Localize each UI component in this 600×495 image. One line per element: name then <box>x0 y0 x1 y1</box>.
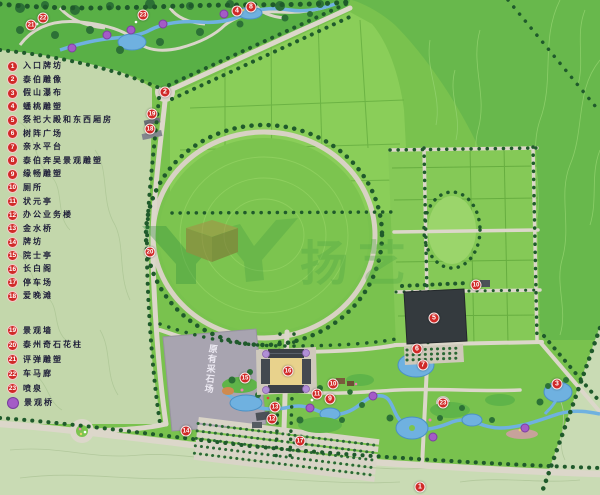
legend-number: 12 <box>7 210 18 221</box>
legend-label: 厕所 <box>23 184 43 192</box>
legend-label: 亲水平台 <box>23 143 63 151</box>
legend-number: 13 <box>7 223 18 234</box>
legend-label: 树阵广场 <box>23 130 63 138</box>
legend-number: 18 <box>7 291 18 302</box>
legend-item: 7亲水平台 <box>7 142 63 153</box>
landscape-bridge-dot[interactable] <box>429 433 438 442</box>
landscape-bridge-dot[interactable] <box>220 10 229 19</box>
map-marker[interactable]: 16 <box>283 366 294 377</box>
legend-number: 8 <box>7 155 18 166</box>
landscape-bridge-dot[interactable] <box>127 26 136 35</box>
legend-number: 14 <box>7 237 18 248</box>
landscape-bridge-dot[interactable] <box>159 20 168 29</box>
legend-label: 喷泉 <box>23 385 43 393</box>
legend-number: 4 <box>7 101 18 112</box>
legend-label: 缘畅雕塑 <box>23 170 63 178</box>
map-marker[interactable]: 8 <box>246 2 257 13</box>
map-marker[interactable]: 15 <box>240 373 251 384</box>
map-marker[interactable]: 10 <box>328 379 339 390</box>
legend-item: 12办公业务楼 <box>7 210 73 221</box>
legend-item: 8泰伯奔吴景观雕塑 <box>7 155 103 166</box>
legend-label: 祭祀大殿和东西厢房 <box>23 116 113 124</box>
map-marker[interactable]: 22 <box>38 13 49 24</box>
legend-label: 泰伯雕像 <box>23 76 63 84</box>
legend-number: 21 <box>7 354 18 365</box>
legend-item: 9缘畅雕塑 <box>7 169 63 180</box>
legend-label: 车马廊 <box>23 370 53 378</box>
map-marker[interactable]: 11 <box>312 389 323 400</box>
legend-item: 21评弹雕塑 <box>7 354 63 365</box>
legend-number: 19 <box>7 325 18 336</box>
legend-number: 23 <box>7 383 18 394</box>
map-marker[interactable]: 6 <box>412 344 423 355</box>
legend-label: 景观墙 <box>23 327 53 335</box>
legend-item-bridge: 景观桥 <box>7 397 54 409</box>
legend-number: 20 <box>7 340 18 351</box>
legend: 1入口牌坊2泰伯雕像3假山瀑布4蟠桃雕塑5祭祀大殿和东西厢房6树阵广场7亲水平台… <box>0 0 600 495</box>
map-marker[interactable]: 21 <box>26 20 37 31</box>
map-marker[interactable]: 14 <box>181 426 192 437</box>
legend-label: 状元亭 <box>23 198 53 206</box>
map-marker[interactable]: 1 <box>415 482 426 493</box>
map-marker[interactable]: 12 <box>267 414 278 425</box>
map-marker[interactable]: 10 <box>471 280 482 291</box>
legend-item: 11状元亭 <box>7 196 53 207</box>
legend-item: 16长白阁 <box>7 264 53 275</box>
legend-label: 牌坊 <box>23 238 43 246</box>
landscape-bridge-dot[interactable] <box>521 424 530 433</box>
legend-item: 6树阵广场 <box>7 128 63 139</box>
legend-label: 办公业务楼 <box>23 211 73 219</box>
legend-label: 泰州奇石花柱 <box>23 341 83 349</box>
legend-item: 1入口牌坊 <box>7 61 63 72</box>
landscape-bridge-dot[interactable] <box>369 392 378 401</box>
legend-number: 1 <box>7 61 18 72</box>
legend-item: 18爱晚滩 <box>7 291 53 302</box>
legend-item: 10厕所 <box>7 182 43 193</box>
landscape-bridge-dot[interactable] <box>306 404 315 413</box>
legend-item: 15院士亭 <box>7 250 53 261</box>
map-marker[interactable]: 5 <box>429 313 440 324</box>
legend-item: 2泰伯雕像 <box>7 74 63 85</box>
legend-number: 6 <box>7 128 18 139</box>
legend-label: 景观桥 <box>24 399 54 407</box>
legend-label: 假山瀑布 <box>23 89 63 97</box>
legend-label: 评弹雕塑 <box>23 356 63 364</box>
map-marker[interactable]: 3 <box>552 379 563 390</box>
legend-number: 16 <box>7 264 18 275</box>
legend-number: 5 <box>7 115 18 126</box>
legend-number: 2 <box>7 74 18 85</box>
park-master-plan-map: 原有采石场 <box>0 0 600 495</box>
legend-label: 金水桥 <box>23 225 53 233</box>
bridge-legend-dot <box>7 397 19 409</box>
legend-item: 13金水桥 <box>7 223 53 234</box>
legend-label: 长白阁 <box>23 265 53 273</box>
legend-label: 爱晚滩 <box>23 292 53 300</box>
legend-item: 22车马廊 <box>7 369 53 380</box>
legend-number: 11 <box>7 196 18 207</box>
legend-number: 15 <box>7 250 18 261</box>
legend-item: 4蟠桃雕塑 <box>7 101 63 112</box>
map-marker[interactable]: 17 <box>295 436 306 447</box>
legend-number: 9 <box>7 169 18 180</box>
map-marker[interactable]: 23 <box>438 398 449 409</box>
map-marker[interactable]: 7 <box>418 360 429 371</box>
map-marker[interactable]: 20 <box>145 247 156 258</box>
map-marker[interactable]: 9 <box>325 394 336 405</box>
map-marker[interactable]: 2 <box>160 87 171 98</box>
map-marker[interactable]: 19 <box>147 109 158 120</box>
map-marker[interactable]: 4 <box>232 6 243 17</box>
map-marker[interactable]: 23 <box>138 10 149 21</box>
legend-label: 院士亭 <box>23 252 53 260</box>
legend-item: 5祭祀大殿和东西厢房 <box>7 115 113 126</box>
legend-label: 入口牌坊 <box>23 62 63 70</box>
legend-item: 14牌坊 <box>7 237 43 248</box>
legend-number: 10 <box>7 182 18 193</box>
legend-label: 泰伯奔吴景观雕塑 <box>23 157 103 165</box>
legend-number: 3 <box>7 88 18 99</box>
legend-label: 蟠桃雕塑 <box>23 103 63 111</box>
legend-item: 20泰州奇石花柱 <box>7 340 83 351</box>
legend-item: 17停车场 <box>7 277 53 288</box>
legend-label: 停车场 <box>23 279 53 287</box>
map-marker[interactable]: 13 <box>270 402 281 413</box>
legend-item: 19景观墙 <box>7 325 53 336</box>
legend-item: 3假山瀑布 <box>7 88 63 99</box>
legend-number: 22 <box>7 369 18 380</box>
legend-number: 17 <box>7 277 18 288</box>
map-marker[interactable]: 18 <box>145 124 156 135</box>
legend-number: 7 <box>7 142 18 153</box>
legend-item: 23喷泉 <box>7 383 43 394</box>
landscape-bridge-dot[interactable] <box>103 31 112 40</box>
landscape-bridge-dot[interactable] <box>68 44 77 53</box>
